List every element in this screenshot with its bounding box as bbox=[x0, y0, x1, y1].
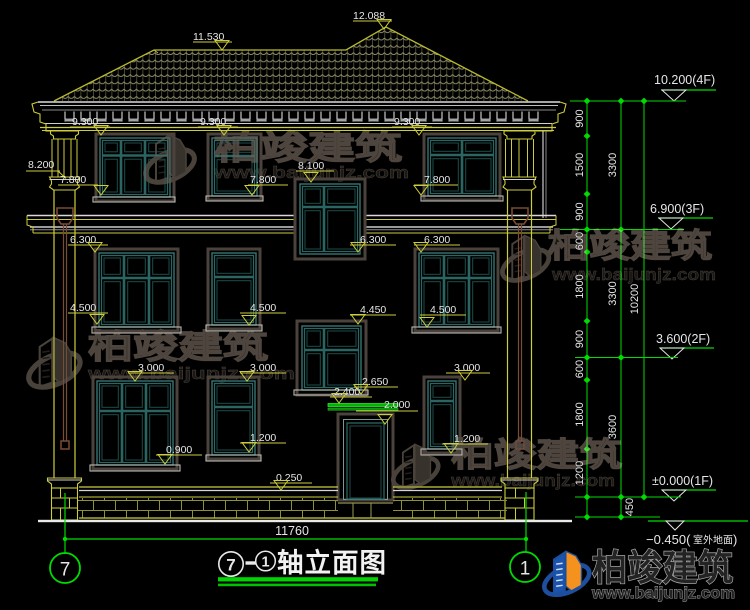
svg-text:3.600(2F): 3.600(2F) bbox=[656, 332, 710, 346]
svg-text:www.baijunjz.com: www.baijunjz.com bbox=[551, 265, 716, 284]
svg-text:轴立面图: 轴立面图 bbox=[277, 548, 387, 578]
svg-text:1: 1 bbox=[261, 555, 269, 571]
svg-text:7: 7 bbox=[226, 556, 235, 575]
svg-text:9.300: 9.300 bbox=[200, 116, 226, 128]
svg-text:1500: 1500 bbox=[574, 153, 586, 177]
svg-text:450: 450 bbox=[624, 498, 636, 516]
svg-text:4.500: 4.500 bbox=[70, 302, 96, 314]
svg-text:±0.000(1F): ±0.000(1F) bbox=[652, 474, 713, 488]
svg-text:−0.450(: −0.450( bbox=[646, 532, 691, 547]
svg-text:柏竣建筑: 柏竣建筑 bbox=[88, 328, 268, 365]
svg-text:柏竣建筑: 柏竣建筑 bbox=[451, 436, 622, 473]
svg-text:柏竣建筑: 柏竣建筑 bbox=[592, 547, 733, 588]
svg-text:10.200(4F): 10.200(4F) bbox=[654, 73, 715, 87]
svg-text:2.650: 2.650 bbox=[362, 376, 388, 388]
svg-text:6.300: 6.300 bbox=[424, 234, 450, 246]
svg-text:): ) bbox=[733, 532, 737, 547]
svg-text:7.800: 7.800 bbox=[424, 174, 450, 186]
svg-text:900: 900 bbox=[574, 202, 586, 220]
svg-text:3300: 3300 bbox=[607, 281, 619, 305]
svg-text:6.300: 6.300 bbox=[70, 234, 96, 246]
svg-text:0.250: 0.250 bbox=[276, 472, 302, 484]
svg-text:1800: 1800 bbox=[574, 402, 586, 426]
svg-text:3300: 3300 bbox=[607, 153, 619, 177]
svg-text:11.530: 11.530 bbox=[193, 31, 224, 43]
svg-text:7.800: 7.800 bbox=[60, 174, 86, 186]
svg-text:6.900(3F): 6.900(3F) bbox=[650, 202, 704, 216]
svg-text:900: 900 bbox=[574, 330, 586, 348]
svg-text:7: 7 bbox=[60, 560, 71, 581]
svg-text:900: 900 bbox=[574, 109, 586, 127]
svg-text:2.400: 2.400 bbox=[334, 386, 360, 398]
svg-text:600: 600 bbox=[574, 360, 586, 378]
svg-text:www.baijunjz.com: www.baijunjz.com bbox=[591, 585, 735, 602]
svg-text:1: 1 bbox=[520, 559, 531, 580]
svg-text:柏竣建筑: 柏竣建筑 bbox=[214, 129, 402, 166]
svg-text:8.200: 8.200 bbox=[28, 159, 54, 171]
svg-text:11760: 11760 bbox=[275, 524, 309, 538]
svg-text:4.500: 4.500 bbox=[250, 302, 276, 314]
svg-text:www.baijunjz.com: www.baijunjz.com bbox=[87, 364, 295, 383]
svg-text:9.300: 9.300 bbox=[394, 116, 420, 128]
svg-text:3.000: 3.000 bbox=[454, 362, 480, 374]
svg-text:室外地面: 室外地面 bbox=[693, 534, 733, 547]
svg-text:10200: 10200 bbox=[629, 284, 641, 315]
svg-text:www.baijunjz.com: www.baijunjz.com bbox=[450, 471, 615, 490]
svg-text:2.000: 2.000 bbox=[384, 399, 410, 411]
svg-text:4.500: 4.500 bbox=[430, 304, 456, 316]
svg-text:12.088: 12.088 bbox=[353, 10, 385, 22]
svg-text:柏竣建筑: 柏竣建筑 bbox=[548, 227, 712, 264]
svg-text:www.baijunjz.com: www.baijunjz.com bbox=[213, 163, 409, 182]
